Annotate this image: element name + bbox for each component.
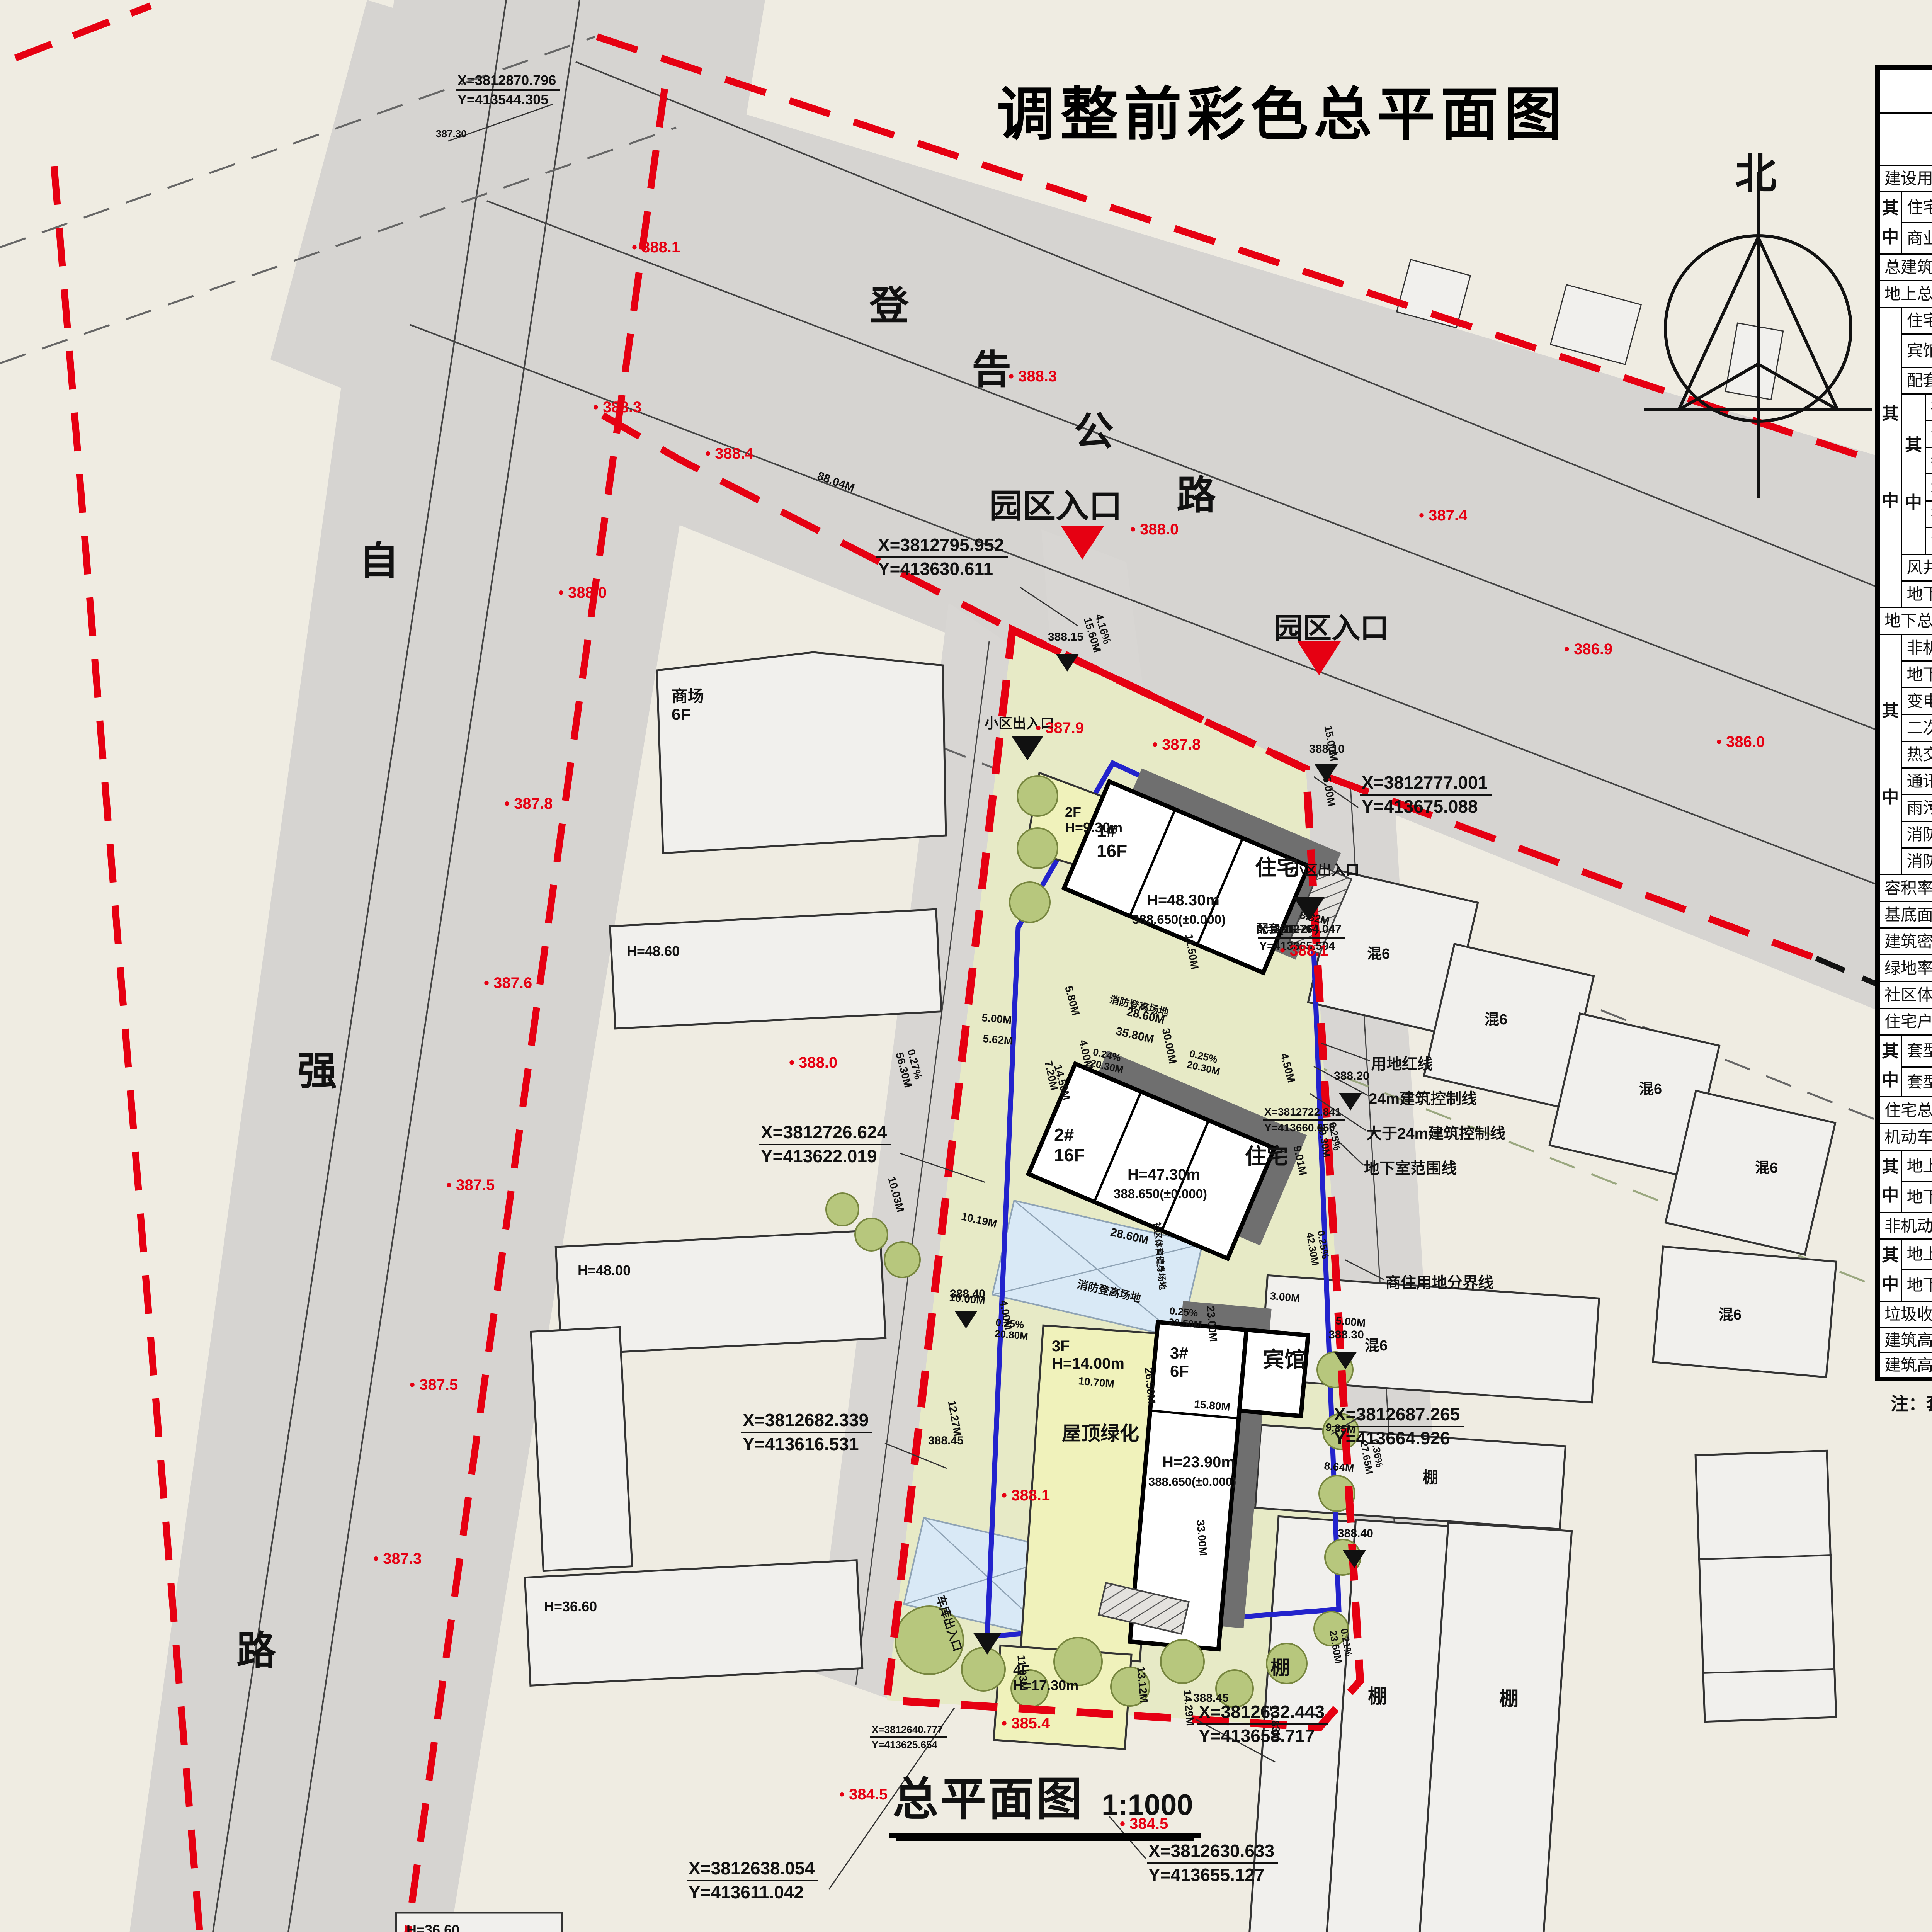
table-row: 社区体育健身场地m²140.00＞0.3m²/人: [1878, 981, 1932, 1008]
table-row: 机动车停车位辆191住宅每户：1.7 车位/户(177车位) 配套用房：0.8车…: [1878, 1124, 1932, 1150]
table-cell: 地下机动车停车位: [1901, 1181, 1932, 1212]
table-cell: 商业用地面积: [1901, 223, 1932, 254]
table-cell: 垃圾转运接驳点: [1925, 474, 1932, 501]
table-cell: 地上机动车停车位: [1901, 1150, 1932, 1181]
table-row: 容积率/2.34＜2.5: [1878, 875, 1932, 901]
page-title: 调整前彩色总平面图: [997, 68, 1567, 151]
site-plan-sheet: { "title": "调整前彩色总平面图", "compass_label":…: [0, 0, 1932, 1932]
table-cell: 建筑高度及层数: [1878, 1328, 1932, 1352]
table-row: 项 目单 位数 量备 注: [1878, 113, 1932, 165]
plan-caption-scale: 1:1000: [1102, 1788, 1193, 1822]
table-row: 非机动车停车位辆181住宅每户：1.5 车位/户(156车位) 配套用房：3.0…: [1878, 1213, 1932, 1239]
table-cell: 消防泵房: [1901, 821, 1932, 848]
table-row: 其 中非机动车库（地下夹层）m²817.00位于1#、2#楼夹层: [1878, 634, 1932, 661]
table-row: 垃圾收集点4处服务半径不大于70米: [1878, 1301, 1932, 1328]
table-cell: 其 中: [1878, 192, 1901, 254]
table-cell: 通讯综合接入机房: [1901, 768, 1932, 794]
table-cell: 其 中: [1878, 307, 1901, 607]
table-cell: 其 中: [1901, 394, 1925, 554]
table-cell: 社区便民店: [1925, 394, 1932, 421]
table-row: 建设用地面积m²7241.85约 10.86 亩: [1878, 165, 1932, 192]
table-row: 建筑密度%27.41＜40%: [1878, 928, 1932, 955]
table-cell: 绿地率: [1878, 955, 1932, 981]
table-cell: 住宅户数: [1878, 1008, 1932, 1035]
table-cell: 变电室: [1901, 688, 1932, 714]
table-row: 总建筑面积m²26339.88: [1878, 254, 1932, 281]
table-cell: 地下车库: [1901, 661, 1932, 688]
table-row: 其 中住宅用地面积m²4255.68商住用地比例=商业用地面积/建设用地面积 (…: [1878, 192, 1932, 223]
table-cell: 垃圾收集点: [1878, 1301, 1932, 1328]
table-cell: 非机动车库（地下夹层）: [1901, 634, 1932, 661]
table-cell: 配套用房建筑面积: [1901, 367, 1932, 394]
table-cell: 宾馆: [1901, 334, 1932, 367]
table-cell: 地上非机动车停车位: [1901, 1239, 1932, 1269]
table-row: 地下总建筑面积m²9182.00: [1878, 607, 1932, 634]
plan-caption-text: 总平面图: [893, 1762, 1084, 1828]
indicator-table-panel: 地 块 经 济 技 术 指 标项 目单 位数 量备 注建设用地面积m²7241.…: [1875, 65, 1932, 1415]
table-cell: 机动车停车位: [1878, 1124, 1932, 1150]
table-cell: 其 中: [1878, 634, 1901, 875]
table-cell: 物业管理: [1925, 447, 1932, 474]
table-cell: 消防水池: [1901, 848, 1932, 874]
table-cell: 其 中: [1878, 1035, 1901, 1097]
table-cell: 地下总建筑面积: [1878, 607, 1932, 634]
table-cell: 套型90平方以上户型: [1901, 1067, 1932, 1097]
table-cell: 基底面积: [1878, 901, 1932, 928]
table-cell: 地下非机动车停车位: [1901, 1269, 1932, 1301]
table-cell: 套型90平方以下户型: [1901, 1035, 1932, 1067]
table-row: 其 中住宅建筑面积m²10672.38其中阳台面积541.04m²: [1878, 307, 1932, 334]
table-cell: 二次供水加压泵站: [1901, 714, 1932, 741]
table-row: 地 块 经 济 技 术 指 标: [1878, 67, 1932, 113]
table-cell: 住宅用地面积: [1901, 192, 1932, 223]
site-plan-canvas: [0, 0, 1932, 1932]
table-row: 住宅总人数人3333.2人/户: [1878, 1097, 1932, 1124]
table-cell: 地 块 经 济 技 术 指 标: [1878, 67, 1932, 113]
table-cell: 项 目: [1878, 113, 1932, 165]
table-cell: 治安联防站: [1925, 421, 1932, 447]
plan-caption: 总平面图 1:1000: [889, 1762, 1201, 1838]
table-cell: 建筑高度及层数: [1878, 1353, 1932, 1379]
table-row: 住宅户数户104: [1878, 1008, 1932, 1035]
table-cell: 非机动车停车位: [1878, 1213, 1932, 1239]
table-cell: 住宅建筑面积: [1901, 307, 1932, 334]
table-row: 建筑高度及层数16层（<50米）: [1878, 1328, 1932, 1352]
table-cell: 社区体育健身场地: [1878, 981, 1932, 1008]
table-row: 其 中地上非机动车停车位辆: [1878, 1239, 1932, 1269]
table-row: 绿地率%30.42＞30%: [1878, 955, 1932, 981]
table-cell: 建设用地面积: [1878, 165, 1932, 192]
table-cell: 雨污水提升泵房: [1901, 794, 1932, 821]
table-cell: 热交换站: [1901, 741, 1932, 768]
table-cell: 建筑密度: [1878, 928, 1932, 955]
table-row: 地上总建筑面积m²17157.88: [1878, 281, 1932, 307]
table-cell: 其 中: [1878, 1239, 1901, 1301]
table-row: 其 中地上机动车停车位辆11: [1878, 1150, 1932, 1181]
table-note: 注：套型90平方以下户型占比104/104= 100%: [1875, 1390, 1932, 1415]
table-cell: 地上总建筑面积: [1878, 281, 1932, 307]
table-cell: 住宅总人数: [1878, 1097, 1932, 1124]
table-cell: 风井建筑面积: [1901, 554, 1932, 581]
table-cell: 总建筑面积: [1878, 254, 1932, 281]
indicators-table: 地 块 经 济 技 术 指 标项 目单 位数 量备 注建设用地面积m²7241.…: [1875, 65, 1932, 1381]
table-cell: 其 中: [1878, 1150, 1901, 1213]
table-row: 其 中套型90平方以下户型户104: [1878, 1035, 1932, 1067]
table-cell: 地下出入口面积: [1901, 581, 1932, 607]
table-row: 基底面积m²1984.66: [1878, 901, 1932, 928]
table-cell: 社区居委会: [1925, 501, 1932, 527]
table-cell: 消防控制室: [1925, 527, 1932, 554]
table-cell: 容积率: [1878, 875, 1932, 901]
table-row: 建筑高度及层数16层（<50米）: [1878, 1353, 1932, 1379]
